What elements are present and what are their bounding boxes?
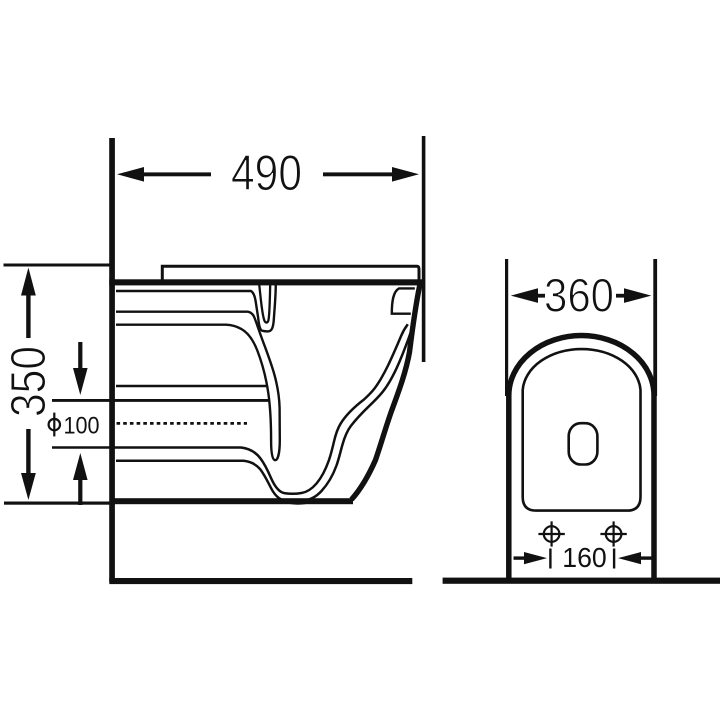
svg-text:490: 490	[231, 145, 302, 201]
svg-text:360: 360	[544, 268, 614, 321]
svg-text:100: 100	[64, 412, 100, 439]
svg-text:350: 350	[2, 346, 56, 417]
svg-text:160: 160	[562, 542, 607, 573]
